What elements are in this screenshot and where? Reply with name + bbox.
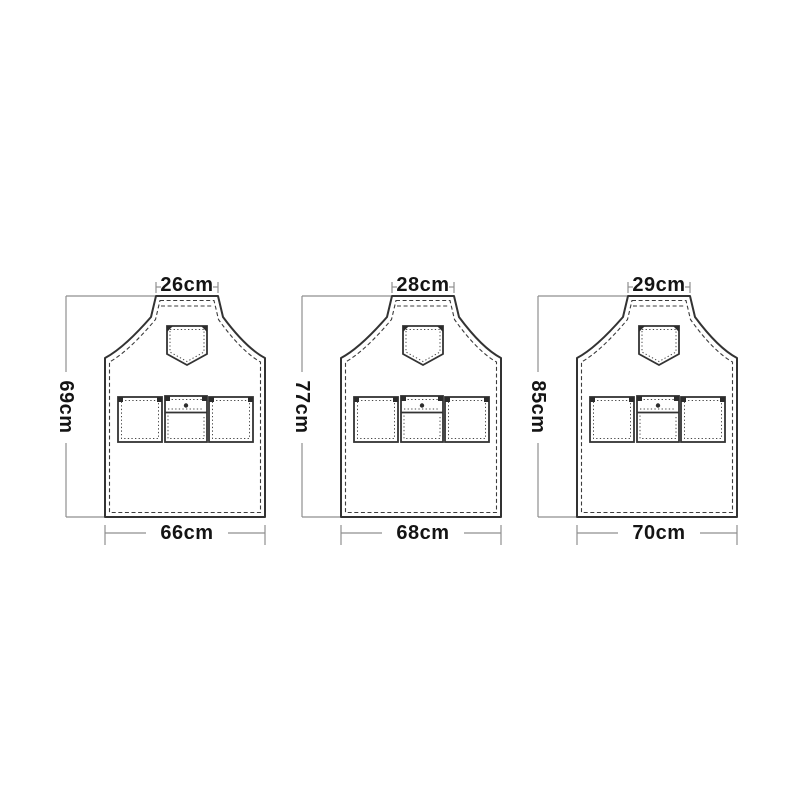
bottom-width-label: 70cm xyxy=(632,522,685,544)
bar-tack-icon xyxy=(590,397,595,402)
bar-tack-icon xyxy=(720,397,725,402)
pocket-middle xyxy=(401,396,443,442)
height-label: 85cm xyxy=(527,380,549,433)
bottom-width-dimension: 66cm xyxy=(105,522,265,545)
lower-pockets xyxy=(590,396,725,442)
top-width-label: 26cm xyxy=(160,274,213,296)
top-width-dimension: 29cm xyxy=(628,274,690,296)
pocket-right xyxy=(681,397,725,442)
bar-tack-icon xyxy=(118,397,123,402)
bar-tack-icon xyxy=(681,397,686,402)
top-width-dimension: 28cm xyxy=(392,274,454,296)
pocket-left xyxy=(118,397,162,442)
pocket-left xyxy=(354,397,398,442)
pocket-left xyxy=(590,397,634,442)
bar-tack-icon xyxy=(165,396,170,401)
button-icon xyxy=(656,403,660,407)
apron-drawing-medium: 28cm 77cm xyxy=(276,262,526,562)
apron-figure-medium: 28cm 77cm xyxy=(276,262,526,562)
bar-tack-icon xyxy=(637,396,642,401)
apron-drawing-small: 26cm 69cm xyxy=(40,262,290,562)
apron-drawing-large: 29cm 85cm xyxy=(512,262,762,562)
bottom-width-dimension: 68cm xyxy=(341,522,501,545)
apron-figure-small: 26cm 69cm xyxy=(40,262,290,562)
bar-tack-icon xyxy=(438,396,443,401)
lower-pockets xyxy=(354,396,489,442)
bottom-width-dimension: 70cm xyxy=(577,522,737,545)
pocket-middle xyxy=(637,396,679,442)
bar-tack-icon xyxy=(401,396,406,401)
bar-tack-icon xyxy=(484,397,489,402)
bar-tack-icon xyxy=(629,397,634,402)
bar-tack-icon xyxy=(157,397,162,402)
bar-tack-icon xyxy=(445,397,450,402)
height-label: 77cm xyxy=(291,380,313,433)
top-width-label: 29cm xyxy=(632,274,685,296)
height-label: 69cm xyxy=(55,380,77,433)
pocket-middle xyxy=(165,396,207,442)
button-icon xyxy=(420,403,424,407)
button-icon xyxy=(184,403,188,407)
size-diagram-canvas: 26cm 69cm xyxy=(0,0,800,800)
bar-tack-icon xyxy=(393,397,398,402)
bar-tack-icon xyxy=(202,396,207,401)
top-width-dimension: 26cm xyxy=(156,274,218,296)
top-width-label: 28cm xyxy=(396,274,449,296)
bar-tack-icon xyxy=(209,397,214,402)
bar-tack-icon xyxy=(248,397,253,402)
apron-figure-large: 29cm 85cm xyxy=(512,262,762,562)
bar-tack-icon xyxy=(354,397,359,402)
bottom-width-label: 68cm xyxy=(396,522,449,544)
bottom-width-label: 66cm xyxy=(160,522,213,544)
lower-pockets xyxy=(118,396,253,442)
pocket-right xyxy=(445,397,489,442)
bar-tack-icon xyxy=(674,396,679,401)
pocket-right xyxy=(209,397,253,442)
